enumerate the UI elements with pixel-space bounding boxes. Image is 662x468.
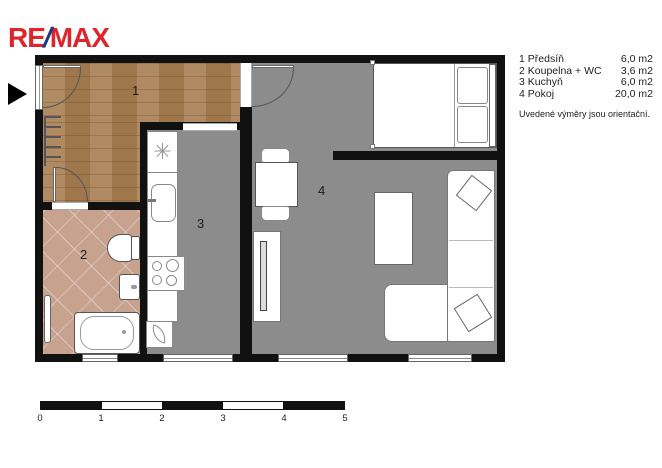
room-legend: 1 Předsíň 6,0 m2 2 Koupelna + WC 3,6 m2 … — [519, 54, 653, 121]
bed-post — [370, 144, 375, 149]
pillow — [457, 106, 488, 143]
sofa-chaise — [384, 284, 448, 342]
tv-stand — [253, 231, 281, 322]
legend-row: 4 Pokoj 20,0 m2 — [519, 89, 653, 101]
burner-icon — [166, 275, 177, 286]
scale-label: 1 — [98, 413, 103, 424]
burner-icon — [152, 275, 162, 285]
scale-bar — [40, 401, 345, 410]
scale-segment — [162, 402, 223, 409]
chair — [261, 148, 290, 163]
living-room-window — [408, 354, 472, 362]
burner-icon — [166, 259, 179, 272]
scale-label: 3 — [220, 413, 225, 424]
burner-icon — [152, 261, 162, 271]
headboard — [489, 64, 496, 147]
kitchen-sink — [151, 184, 176, 222]
wall — [35, 55, 505, 63]
entrance-arrow-icon — [8, 83, 27, 105]
legend-room-area: 20,0 m2 — [615, 89, 653, 101]
chair — [261, 206, 290, 221]
faucet-icon — [147, 199, 156, 202]
scale-segment — [102, 402, 163, 409]
towel-radiator — [44, 295, 51, 343]
bathroom-door-opening — [52, 202, 88, 210]
scale-segment — [283, 402, 344, 409]
sofa-cushion-line — [449, 287, 493, 288]
bathtub-inner — [80, 316, 134, 350]
pillow — [457, 67, 488, 104]
vent-fan-box: ✳ — [147, 131, 178, 173]
legend-note: Uvedené výměry jsou orientační. — [519, 109, 653, 121]
partial-wall — [333, 151, 497, 160]
coat-rack-icon — [44, 116, 61, 166]
sink-tap-icon — [131, 285, 137, 289]
dining-table — [255, 162, 298, 207]
wardrobe — [374, 192, 413, 265]
scale-label: 4 — [281, 413, 286, 424]
legend-room-area: 6,0 m2 — [621, 77, 653, 89]
living-room-window — [278, 354, 348, 362]
remax-logo: RE/MAX — [8, 24, 109, 52]
entrance-door-opening — [35, 65, 43, 110]
scale-segment — [41, 402, 102, 409]
toilet-tank — [131, 236, 140, 260]
wall — [140, 122, 147, 354]
scale-label: 5 — [342, 413, 347, 424]
bed-divider — [454, 64, 455, 147]
room-label-kitchen: 3 — [197, 216, 204, 231]
kitchen-entry-opening — [183, 123, 237, 131]
bed-post — [370, 60, 375, 65]
scale-segment — [223, 402, 284, 409]
wall — [497, 55, 505, 362]
legend-room-area: 6,0 m2 — [621, 54, 653, 66]
logo-text-re: RE — [8, 22, 45, 53]
living-room-door-opening — [240, 63, 252, 107]
floorplan-page: RE/MAX — [0, 0, 662, 468]
scale-label: 0 — [37, 413, 42, 424]
logo-text-max: MAX — [50, 22, 109, 53]
sofa-cushion-line — [449, 240, 493, 241]
bathroom-window — [82, 354, 118, 362]
room-label-bathroom: 2 — [80, 247, 87, 262]
legend-room-name: 4 Pokoj — [519, 89, 554, 101]
kitchen-window — [163, 354, 233, 362]
scale-label: 2 — [159, 413, 164, 424]
tv-icon — [260, 241, 267, 311]
drain-icon — [122, 330, 126, 334]
fan-icon: ✳ — [153, 139, 171, 164]
toilet — [107, 234, 132, 262]
room-label-hallway: 1 — [132, 83, 139, 98]
room-label-living-room: 4 — [318, 183, 325, 198]
